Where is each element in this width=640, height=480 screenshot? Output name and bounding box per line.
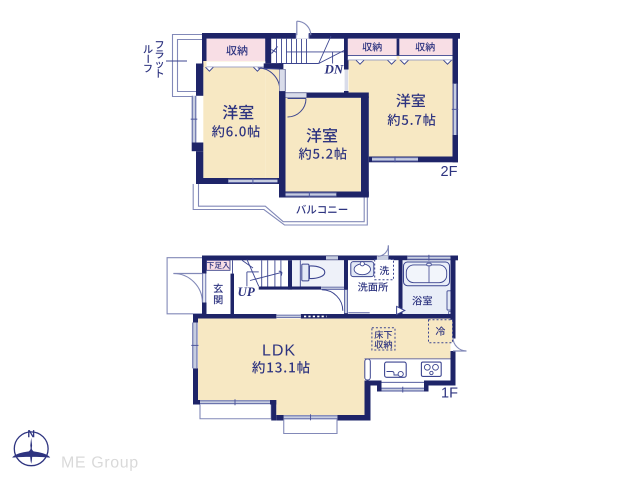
svg-text:2F: 2F (441, 164, 458, 180)
svg-text:1F: 1F (441, 386, 458, 402)
svg-text:UP: UP (238, 284, 256, 299)
svg-text:DN: DN (324, 62, 344, 77)
